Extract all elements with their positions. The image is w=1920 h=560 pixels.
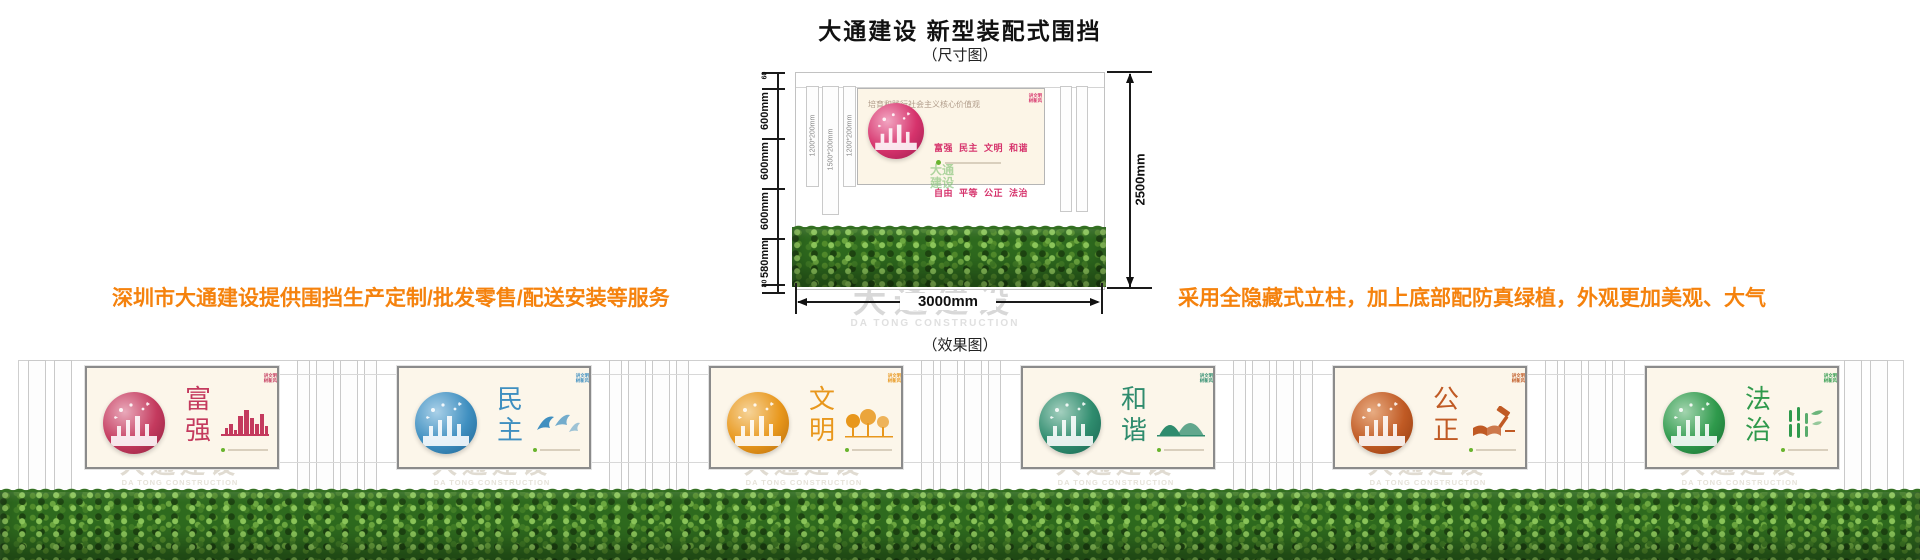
datong-green-logo-watermark: 大通 建设: [930, 164, 954, 190]
mountains-icon: [1157, 406, 1205, 440]
effect-diagram-label: （效果图）: [760, 334, 1160, 355]
arrow-right-icon: [1090, 298, 1100, 306]
effect-panel-3: 培育和践行社会主义核心价值观 富强 民主 文明 和谐 自由 平等 公正 法治 爱…: [709, 366, 903, 469]
dim-2500-line: [1129, 74, 1131, 287]
post-size-label: 1500*200mm: [827, 119, 834, 179]
fence-rail-line: [1523, 374, 1645, 375]
core-value-circle-art: [1351, 392, 1413, 454]
micro-caption-line: [1164, 449, 1204, 451]
green-dot-icon: [1781, 448, 1785, 452]
micro-caption-line: [852, 449, 892, 451]
fence-rail-line: [899, 374, 1021, 375]
fence-post: [1300, 360, 1313, 494]
marketing-note-left: 深圳市大通建设提供围挡生产定制/批发零售/配送安装等服务: [112, 282, 670, 312]
fence-post: [1076, 86, 1088, 212]
panel-header-text: 培育和践行社会主义核心价值观 富强 民主 文明 和谐 自由 平等 公正 法治 爱…: [1345, 374, 1495, 379]
core-value-word: 公正: [1431, 384, 1461, 446]
fence-post: [1844, 360, 1862, 494]
dim-3000-label: 3000mm: [900, 293, 996, 310]
panel-header-text: 培育和践行社会主义核心价值观 富强 民主 文明 和谐 自由 平等 公正 法治 爱…: [1033, 374, 1183, 379]
panel-badge: 讲文明树新风: [888, 373, 901, 383]
effect-panel-6: 培育和践行社会主义核心价值观 富强 民主 文明 和谐 自由 平等 公正 法治 爱…: [1645, 366, 1839, 469]
fence-post: [609, 360, 622, 494]
panel-badge: 讲文明树新风: [576, 373, 589, 383]
fence-post: 1200*200mm: [843, 86, 856, 187]
fence-post: 1200*200mm: [806, 86, 819, 187]
green-dot-icon: [1469, 448, 1473, 452]
fence-post: [628, 360, 646, 494]
arrow-up-icon: [1126, 73, 1134, 83]
fence-post: [316, 360, 334, 494]
dim-2500-bottom-cap: [1107, 287, 1152, 289]
fence-rail-line: [587, 374, 709, 375]
fence-rail-line: [275, 462, 397, 463]
fence-post: [676, 360, 689, 494]
core-value-circle-art: [103, 392, 165, 454]
core-value-word: 富强: [183, 384, 213, 446]
fence-post: [964, 360, 982, 494]
post-size-label: 1200*200mm: [809, 105, 816, 165]
micro-caption-line: [540, 449, 580, 451]
fence-post: [1276, 360, 1294, 494]
panel-header-text: 培育和践行社会主义核心价值观 富强 民主 文明 和谐 自由 平等 公正 法治 爱…: [721, 374, 871, 379]
core-value-word: 和谐: [1119, 384, 1149, 446]
panel-badge: 讲文明树新风: [1824, 373, 1837, 383]
fence-rail-line: [899, 462, 1021, 463]
panel-header-text: 培育和践行社会主义核心价值观 富强 民主 文明 和谐 自由 平等 公正 法治 爱…: [97, 374, 247, 379]
dim-3000-right-bar: [1101, 283, 1103, 314]
core-value-circle-art: [727, 392, 789, 454]
justice-icon: [1469, 406, 1517, 440]
fence-post: [28, 360, 46, 494]
bamboo-icon: [1781, 406, 1829, 440]
marketing-note-right: 采用全隐藏式立柱，加上底部配防真绿植，外观更加美观、大气: [1178, 282, 1766, 312]
dim-left-label: 80: [762, 244, 769, 324]
green-dot-icon: [533, 448, 537, 452]
effect-panel-5: 培育和践行社会主义核心价值观 富强 民主 文明 和谐 自由 平等 公正 法治 爱…: [1333, 366, 1527, 469]
green-dot-icon: [845, 448, 849, 452]
fence-rail-line: [1211, 374, 1333, 375]
fence-post: [1564, 360, 1582, 494]
fence-post: [940, 360, 958, 494]
trees-icon: [845, 406, 893, 440]
dim-2500-label: 2500mm: [1133, 140, 1148, 220]
skyline-icon: [221, 406, 269, 440]
effect-hedge: [0, 490, 1920, 560]
effect-panel-1: 培育和践行社会主义核心价值观 富强 民主 文明 和谐 自由 平等 公正 法治 爱…: [85, 366, 279, 469]
doves-icon: [533, 406, 581, 440]
dimension-left-scale: [777, 72, 779, 292]
fence-post: [54, 360, 72, 494]
micro-caption-line: [1788, 449, 1828, 451]
fence-post: [921, 360, 934, 494]
watermark-en: DA TONG CONSTRUCTION: [803, 318, 1067, 329]
dimension-diagram-label: （尺寸图）: [560, 44, 1360, 65]
fence-post: [1252, 360, 1270, 494]
arrow-left-icon: [797, 298, 807, 306]
fence-post: [1545, 360, 1558, 494]
green-dot-icon: [221, 448, 225, 452]
core-value-word: 法治: [1743, 384, 1773, 446]
billboard-badge: 讲文明 树新风: [1029, 93, 1042, 103]
core-value-circle-art: [415, 392, 477, 454]
core-value-word: 文明: [807, 384, 837, 446]
panel-badge: 讲文明树新风: [1200, 373, 1213, 383]
fence-rail-line: [275, 374, 397, 375]
post-size-label: 1200*200mm: [846, 105, 853, 165]
effect-panel-4: 培育和践行社会主义核心价值观 富强 民主 文明 和谐 自由 平等 公正 法治 爱…: [1021, 366, 1215, 469]
fence-post: [1588, 360, 1606, 494]
fence-post: [1870, 360, 1888, 494]
fence-post: [364, 360, 377, 494]
page: 大通建设 新型装配式围挡 （尺寸图） 深圳市大通建设提供围挡生产定制/批发零售/…: [0, 0, 1920, 560]
panel-badge: 讲文明树新风: [264, 373, 277, 383]
fence-rail-line: [1211, 462, 1333, 463]
arrow-down-icon: [1126, 277, 1134, 287]
fence-post: [1233, 360, 1246, 494]
core-value-word: 民主: [495, 384, 525, 446]
fence-post: [652, 360, 670, 494]
micro-caption-line: [228, 449, 268, 451]
page-title: 大通建设 新型装配式围挡: [560, 12, 1360, 46]
fence-rail-line: [1523, 462, 1645, 463]
panel-header-text: 培育和践行社会主义核心价值观 富强 民主 文明 和谐 自由 平等 公正 法治 爱…: [409, 374, 559, 379]
fence-post: [988, 360, 1001, 494]
fence-post: [1060, 86, 1072, 212]
panel-badge: 讲文明树新风: [1512, 373, 1525, 383]
green-dot-icon: [1157, 448, 1161, 452]
diagram-hedge: [792, 227, 1106, 287]
billboard-header-text: 培育和践行社会主义核心价值观: [868, 94, 980, 99]
core-value-circle-art: [868, 103, 924, 159]
fence-post: 1500*200mm: [822, 86, 839, 215]
fence-post: [340, 360, 358, 494]
panel-header-text: 培育和践行社会主义核心价值观 富强 民主 文明 和谐 自由 平等 公正 法治 爱…: [1657, 374, 1807, 379]
core-value-circle-art: [1663, 392, 1725, 454]
fence-rail-line: [587, 462, 709, 463]
micro-caption-line: [1476, 449, 1516, 451]
core-value-circle-art: [1039, 392, 1101, 454]
fence-post: [297, 360, 310, 494]
fence-post: [1612, 360, 1625, 494]
effect-panel-2: 培育和践行社会主义核心价值观 富强 民主 文明 和谐 自由 平等 公正 法治 爱…: [397, 366, 591, 469]
